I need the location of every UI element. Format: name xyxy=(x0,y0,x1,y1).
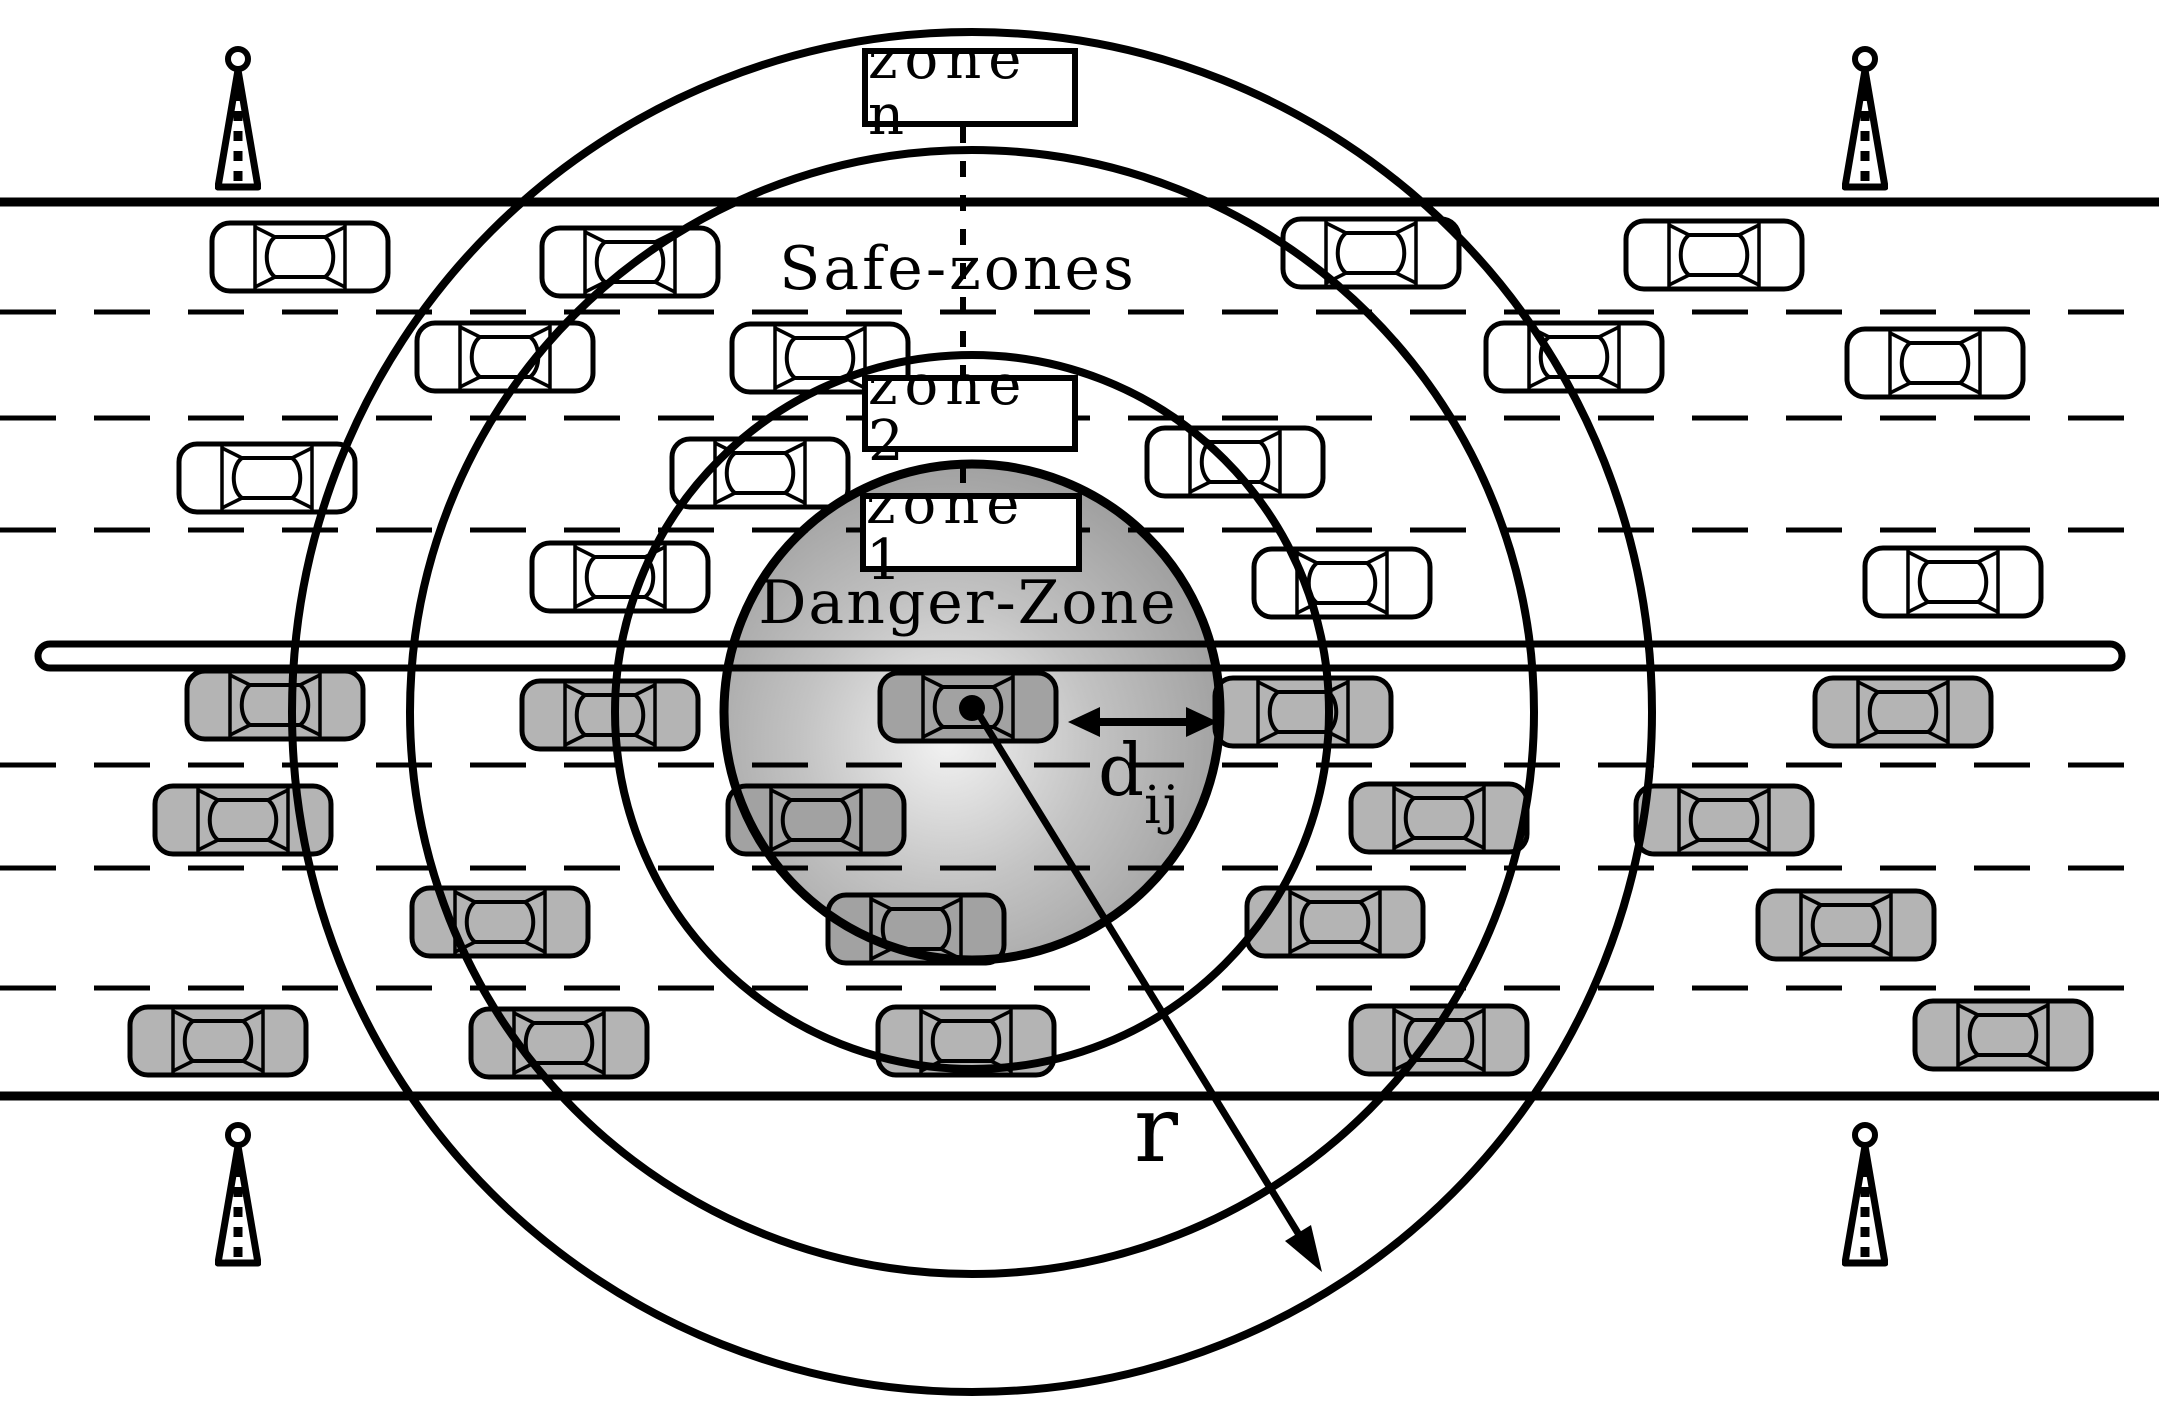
radius-label: r xyxy=(1134,1076,1178,1183)
zone-n-box: zone n xyxy=(862,48,1078,127)
safe-zones-label: Safe-zones xyxy=(779,234,1137,304)
car-white xyxy=(1283,219,1459,287)
roadside-antenna-icon xyxy=(218,49,258,187)
radius-arrowhead xyxy=(1285,1225,1322,1272)
car-white xyxy=(1865,548,2041,616)
car-gray xyxy=(1758,891,1934,959)
car-gray xyxy=(1215,678,1391,746)
car-gray xyxy=(522,681,698,749)
car-gray xyxy=(1351,1006,1527,1074)
car-white xyxy=(532,543,708,611)
distance-dij-label: dij xyxy=(1098,734,1181,832)
zone-diagram: Safe-zones Danger-Zone zone n zone 2 zon… xyxy=(0,0,2159,1425)
car-white xyxy=(417,323,593,391)
car-white xyxy=(672,439,848,507)
roadside-antenna-icon xyxy=(1845,1125,1885,1263)
car-white xyxy=(1147,428,1323,496)
car-white xyxy=(212,223,388,291)
center-vehicle-dot xyxy=(959,695,985,721)
car-white xyxy=(1254,549,1430,617)
car-gray xyxy=(1351,784,1527,852)
distance-d: d xyxy=(1098,728,1144,812)
diagram-canvas xyxy=(0,0,2159,1425)
zone-n-label: zone n xyxy=(868,32,1072,144)
car-gray xyxy=(1915,1001,2091,1069)
car-white xyxy=(1486,323,1662,391)
car-gray xyxy=(1636,786,1812,854)
car-gray xyxy=(130,1007,306,1075)
distance-ij-subscript: ij xyxy=(1144,776,1181,836)
car-white xyxy=(1626,221,1802,289)
car-gray xyxy=(187,671,363,739)
roadside-antenna-icon xyxy=(1845,49,1885,187)
zone-2-label: zone 2 xyxy=(868,358,1072,470)
zone-1-label: zone 1 xyxy=(866,477,1076,589)
roadside-antenna-icon xyxy=(218,1125,258,1263)
zone-1-box: zone 1 xyxy=(860,493,1082,572)
zone-2-box: zone 2 xyxy=(862,375,1078,452)
car-white xyxy=(1847,329,2023,397)
car-danger xyxy=(728,786,904,854)
car-gray xyxy=(1815,678,1991,746)
